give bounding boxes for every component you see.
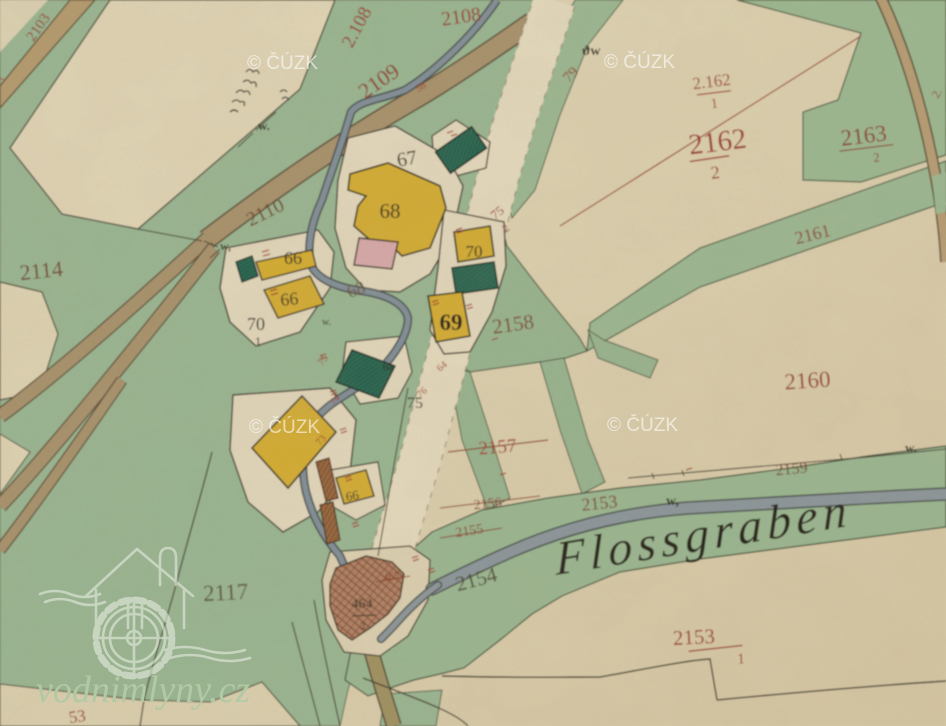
- svg-text:© ČÚZK: © ČÚZK: [249, 416, 320, 438]
- svg-text:© ČÚZK: © ČÚZK: [604, 51, 675, 73]
- svg-text:© ČÚZK: © ČÚZK: [247, 52, 318, 74]
- svg-text:© ČÚZK: © ČÚZK: [607, 414, 678, 436]
- svg-text:vodnimlyny.cz: vodnimlyny.cz: [36, 669, 250, 711]
